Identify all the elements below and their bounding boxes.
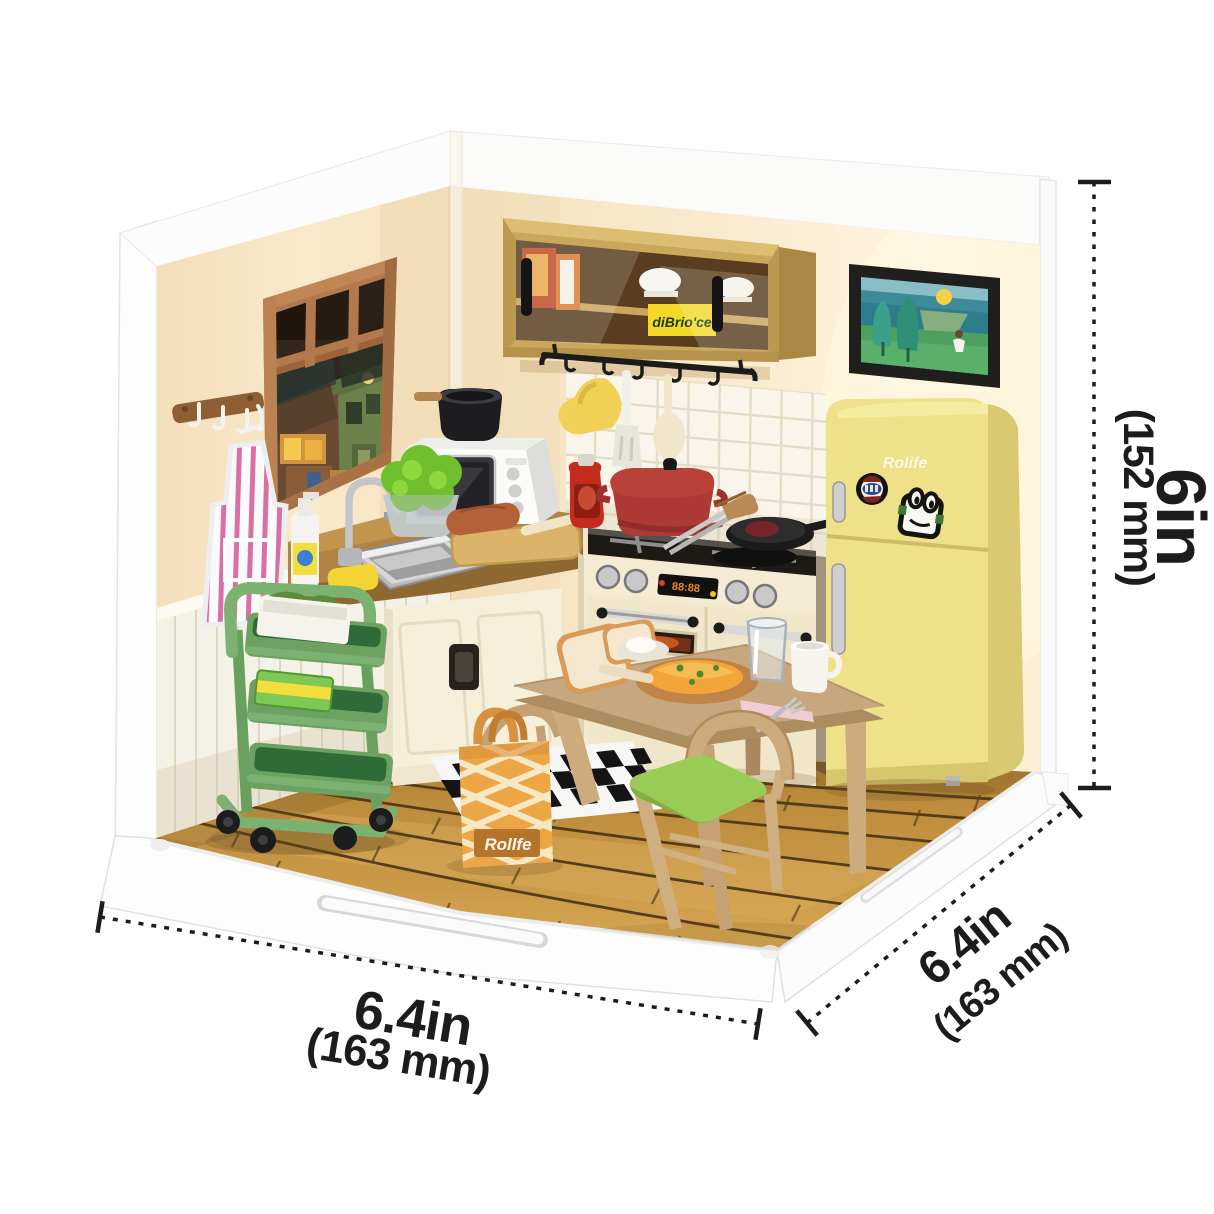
- svg-text:88:88: 88:88: [671, 581, 700, 595]
- svg-text:Rolife: Rolife: [883, 455, 928, 472]
- svg-text:(152 mm): (152 mm): [1114, 409, 1162, 586]
- svg-text:Rollfe: Rollfe: [484, 835, 531, 854]
